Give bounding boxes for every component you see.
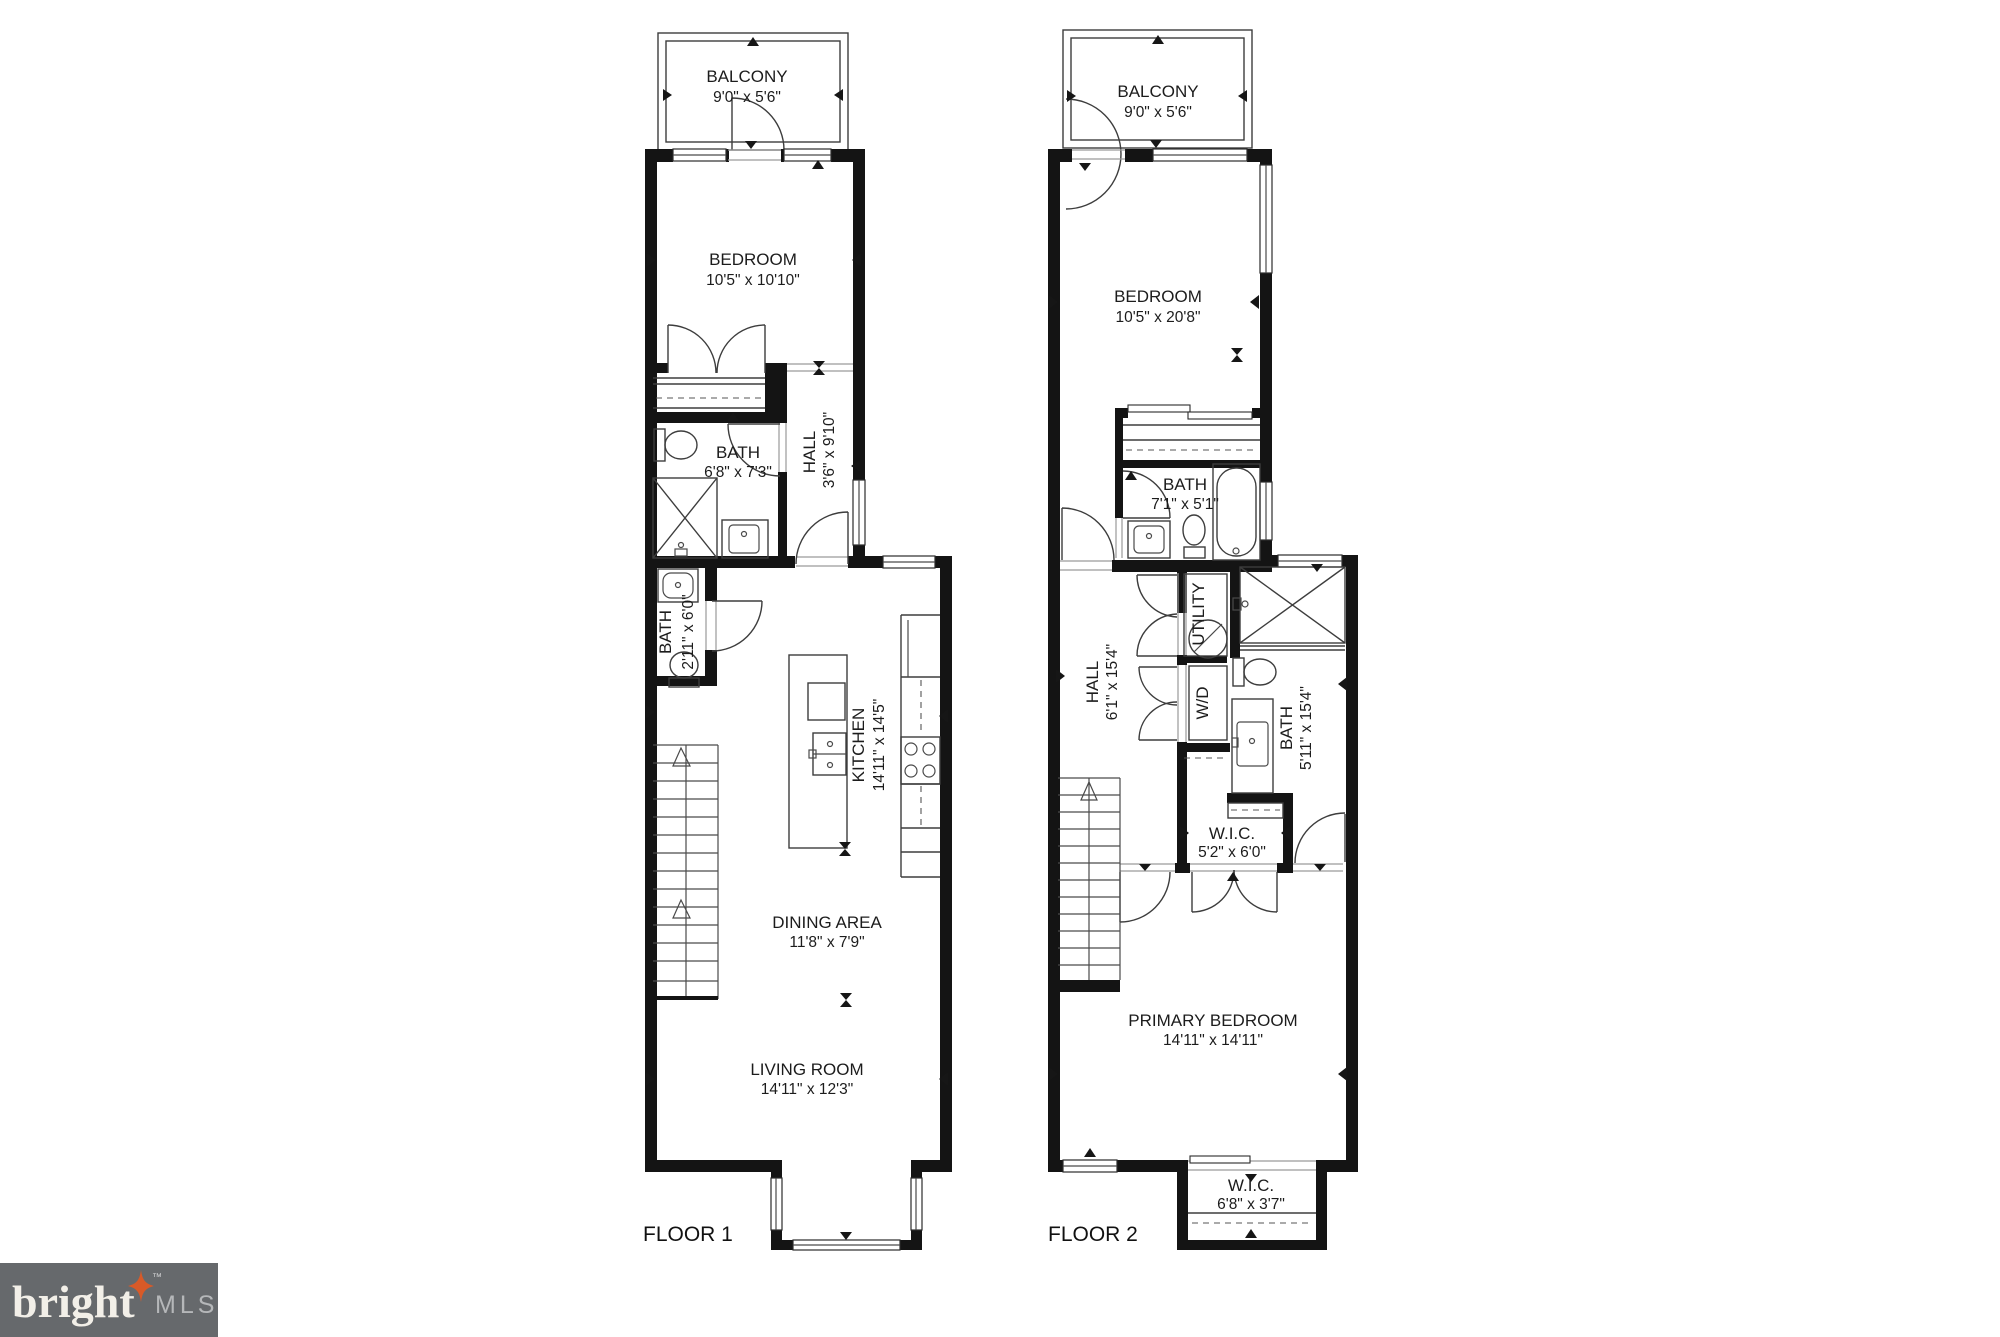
window xyxy=(883,556,935,568)
window xyxy=(793,1240,900,1250)
door-arc xyxy=(1137,614,1177,656)
stair-arrow-icon xyxy=(673,900,690,918)
room-dims-powder-f1: 2'11" x 6'0" xyxy=(680,594,697,669)
toilet-tank xyxy=(1184,547,1205,558)
room-label-bath-main-f2: BATH xyxy=(1277,706,1296,750)
door-arc xyxy=(1234,870,1277,912)
room-label-bedroom-f2: BEDROOM xyxy=(1114,287,1202,306)
room-dims-balcony-f2: 9'0" x 5'6" xyxy=(1124,104,1192,121)
room-dims-living-f1: 14'11" x 12'3" xyxy=(761,1081,853,1098)
door-arc xyxy=(1295,813,1345,863)
room-label-primary-f2: PRIMARY BEDROOM xyxy=(1128,1011,1297,1030)
toilet-tank xyxy=(1233,658,1244,686)
wic-hall-f2 xyxy=(1228,803,1283,818)
window xyxy=(673,149,726,161)
room-label-dining-f1: DINING AREA xyxy=(772,913,882,932)
room-label-balcony-f1: BALCONY xyxy=(706,67,787,86)
window xyxy=(911,1178,922,1230)
stairs-f1 xyxy=(653,745,718,1000)
door-arc xyxy=(1139,667,1177,705)
room-dims-bedroom-f2: 10'5" x 20'8" xyxy=(1115,309,1200,326)
door-arc xyxy=(1192,870,1234,912)
room-label-hall-f2: HALL xyxy=(1083,661,1102,704)
room-dims-dining-f1: 11'8" x 7'9" xyxy=(789,934,864,951)
room-label-bath-f1: BATH xyxy=(716,443,760,462)
window xyxy=(853,480,865,545)
door-arc xyxy=(1137,575,1177,617)
hall-door-arc-f1 xyxy=(796,512,848,564)
floor-2-plan: BALCONY 9'0" x 5'6" BEDROOM 10'5" x 20'8… xyxy=(1048,30,1358,1250)
room-label-utility-f2: UTILITY xyxy=(1189,582,1208,645)
floor-1-title: FLOOR 1 xyxy=(643,1223,733,1246)
floor-2-title: FLOOR 2 xyxy=(1048,1223,1138,1246)
door-arc xyxy=(1139,702,1177,740)
window xyxy=(1260,482,1272,540)
room-label-kitchen-f1: KITCHEN xyxy=(849,708,868,783)
room-dims-primary-f2: 14'11" x 14'11" xyxy=(1163,1032,1263,1049)
room-dims-wic-hall-f2: 5'2" x 6'0" xyxy=(1198,844,1266,861)
window xyxy=(784,149,831,161)
window xyxy=(771,1178,782,1230)
room-label-powder-f1: BATH xyxy=(656,610,675,654)
room-label-wic-lower-f2: W.I.C. xyxy=(1228,1176,1274,1195)
room-dims-bath-upper-f2: 7'1" x 5'1" xyxy=(1151,496,1219,513)
room-label-wic-hall-f2: W.I.C. xyxy=(1209,824,1255,843)
door-arc xyxy=(1120,872,1170,922)
window xyxy=(1278,555,1342,567)
room-label-balcony-f2: BALCONY xyxy=(1117,82,1198,101)
brand-mls: MLS xyxy=(155,1291,218,1319)
room-dims-hall-f2: 6'1" x 15'4" xyxy=(1104,644,1121,720)
room-dims-wic-lower-f2: 6'8" x 3'7" xyxy=(1217,1196,1285,1213)
toilet-bowl xyxy=(665,431,697,459)
room-label-bath-upper-f2: BATH xyxy=(1163,475,1207,494)
room-label-wd-f2: W/D xyxy=(1193,686,1212,719)
floor-plan-page: BALCONY 9'0" x 5'6" BEDROOM 10'5" x 10'1… xyxy=(0,0,2000,1337)
room-dims-bedroom-f1: 10'5" x 10'10" xyxy=(706,272,800,289)
room-dims-kitchen-f1: 14'11" x 14'5" xyxy=(871,699,888,791)
brand-tm: ™ xyxy=(152,1272,162,1283)
kitchen-counter-f1 xyxy=(901,615,940,877)
primary-doors-f2 xyxy=(1120,870,1277,922)
room-label-bedroom-f1: BEDROOM xyxy=(709,250,797,269)
closet-f2 xyxy=(1123,405,1260,450)
room-label-hall-f1: HALL xyxy=(800,431,819,474)
bathtub xyxy=(1213,464,1260,560)
kitchen-island-f1 xyxy=(789,655,847,848)
brand-wordmark: bright xyxy=(12,1276,135,1327)
hall-top-door-arc-f2 xyxy=(1062,508,1114,560)
floor-1-plan: BALCONY 9'0" x 5'6" BEDROOM 10'5" x 10'1… xyxy=(643,33,952,1250)
room-dims-hall-f1: 3'6" x 9'10" xyxy=(821,412,838,488)
room-dims-balcony-f1: 9'0" x 5'6" xyxy=(713,89,781,106)
door-arc xyxy=(712,601,762,651)
stairs-f2 xyxy=(1058,778,1120,980)
closet-f1 xyxy=(653,325,765,408)
window xyxy=(1063,1160,1117,1172)
room-dims-bath-f1: 6'8" x 7'3" xyxy=(704,464,772,481)
room-label-living-f1: LIVING ROOM xyxy=(750,1060,863,1079)
brand-logo: bright ™ MLS xyxy=(0,1263,218,1337)
door-arc xyxy=(1066,99,1121,209)
room-dims-bath-main-f2: 5'11" x 15'4" xyxy=(1298,686,1315,770)
floor-plan-canvas: BALCONY 9'0" x 5'6" BEDROOM 10'5" x 10'1… xyxy=(0,0,2000,1337)
toilet-bowl xyxy=(1183,515,1205,545)
window xyxy=(1153,149,1247,161)
toilet-bowl xyxy=(1244,659,1276,685)
french-door-arcs xyxy=(668,325,765,373)
window xyxy=(1260,165,1272,273)
